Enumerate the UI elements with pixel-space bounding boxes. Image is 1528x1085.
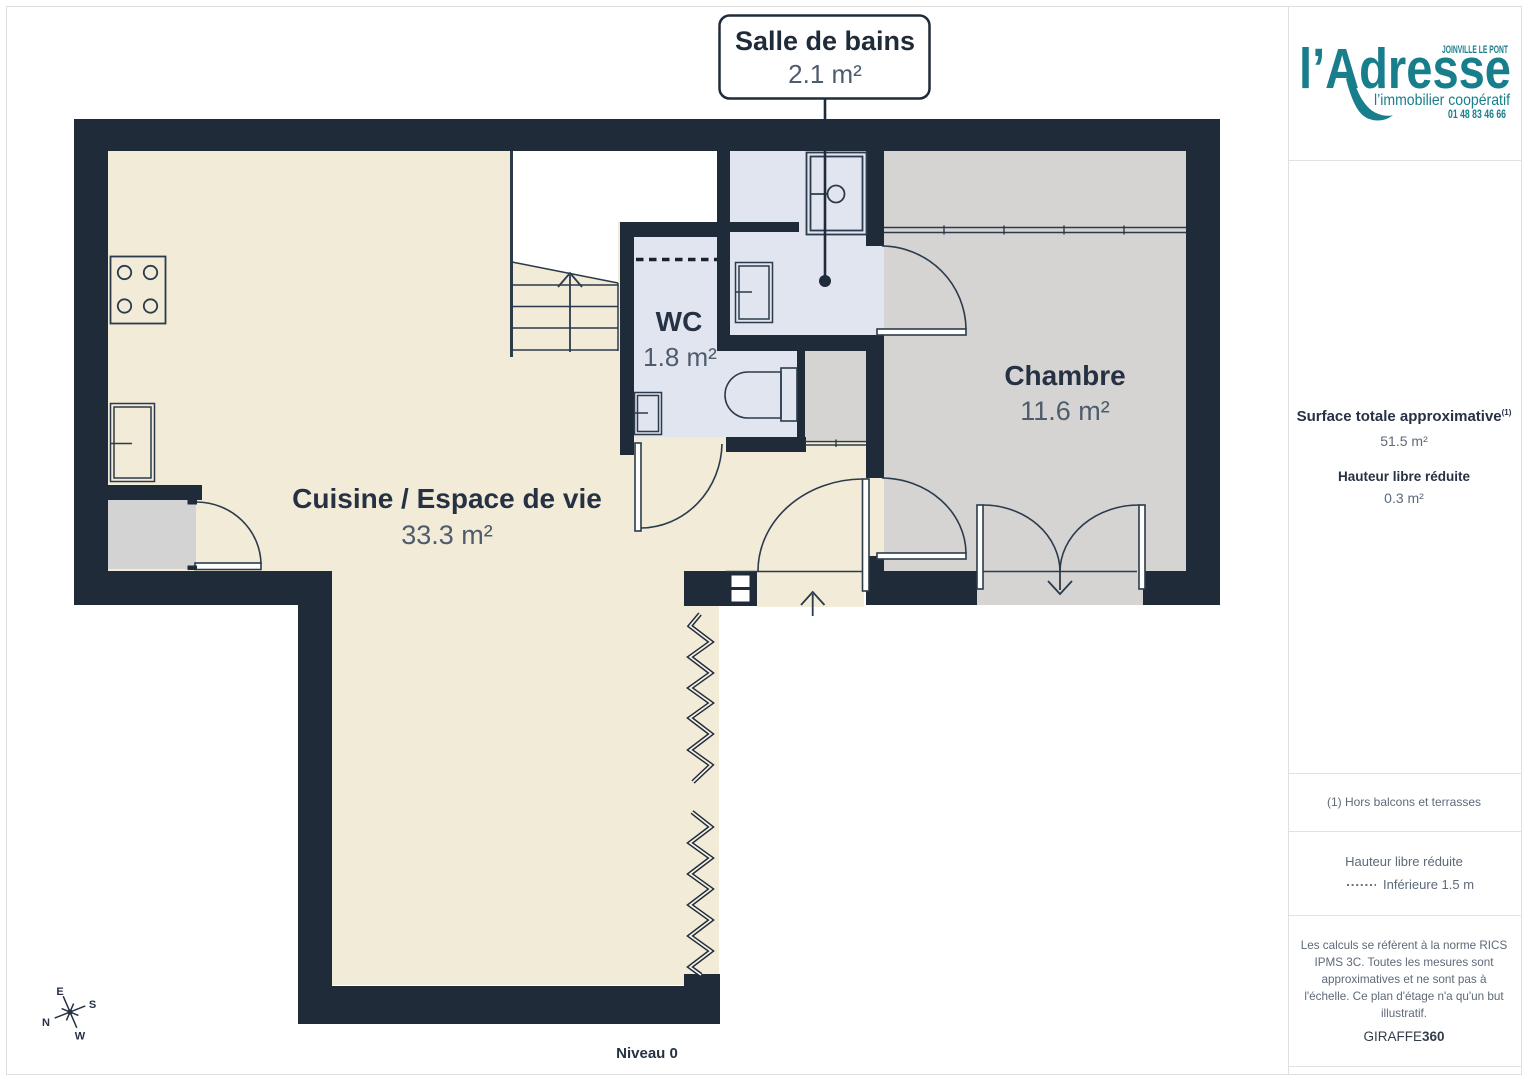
svg-text:WC: WC xyxy=(656,306,703,337)
svg-text:01 48 83 46 66: 01 48 83 46 66 xyxy=(1448,107,1506,121)
svg-text:(1) Hors balcons et terrasses: (1) Hors balcons et terrasses xyxy=(1327,795,1481,809)
svg-text:Hauteur libre réduite: Hauteur libre réduite xyxy=(1345,854,1463,869)
svg-text:11.6 m²: 11.6 m² xyxy=(1020,396,1110,426)
svg-text:Inférieure 1.5 m: Inférieure 1.5 m xyxy=(1383,877,1474,892)
svg-text:GIRAFFE360: GIRAFFE360 xyxy=(1363,1029,1444,1044)
svg-text:Les calculs se réfèrent à la n: Les calculs se réfèrent à la norme RICS xyxy=(1301,939,1508,952)
svg-text:Chambre: Chambre xyxy=(1004,360,1125,391)
svg-text:l'échelle. Ce plan d'étage n'a: l'échelle. Ce plan d'étage n'a qu'un but xyxy=(1304,990,1504,1003)
svg-text:approximatives et ne sont pas: approximatives et ne sont pas à xyxy=(1321,973,1487,986)
svg-text:S: S xyxy=(89,999,96,1011)
svg-text:Surface totale approximative(1: Surface totale approximative(1) xyxy=(1297,408,1512,425)
svg-text:Niveau 0: Niveau 0 xyxy=(616,1045,678,1062)
svg-text:IPMS 3C. Toutes les mesures so: IPMS 3C. Toutes les mesures sont xyxy=(1314,956,1494,969)
svg-text:2.1 m²: 2.1 m² xyxy=(788,59,862,89)
svg-text:Salle de bains: Salle de bains xyxy=(735,26,915,56)
svg-text:33.3 m²: 33.3 m² xyxy=(401,520,493,550)
svg-text:N: N xyxy=(42,1017,50,1029)
svg-text:E: E xyxy=(56,986,63,998)
svg-text:W: W xyxy=(75,1031,86,1043)
svg-text:1.8 m²: 1.8 m² xyxy=(643,342,717,372)
svg-text:51.5 m²: 51.5 m² xyxy=(1380,433,1428,449)
svg-text:illustratif.: illustratif. xyxy=(1381,1007,1427,1020)
svg-text:Hauteur libre réduite: Hauteur libre réduite xyxy=(1338,469,1471,484)
svg-text:0.3 m²: 0.3 m² xyxy=(1384,490,1424,506)
svg-text:Cuisine / Espace de vie: Cuisine / Espace de vie xyxy=(292,483,602,514)
